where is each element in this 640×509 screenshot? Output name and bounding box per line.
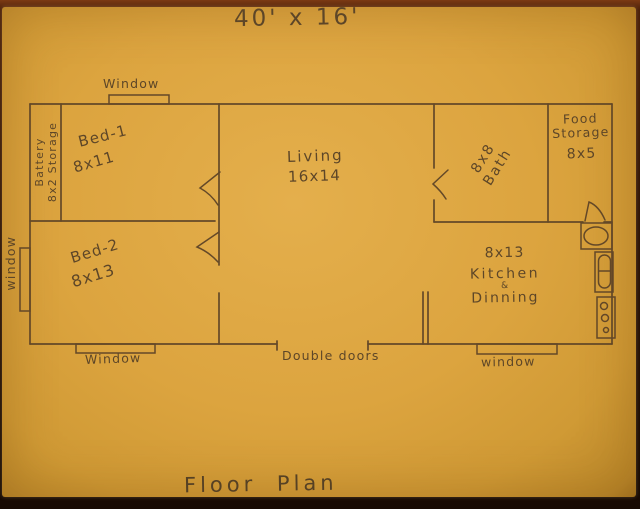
window-bottom-right-symbol (477, 344, 557, 354)
kitchen-dims: 8x13 (461, 244, 547, 263)
window-top-symbol (109, 95, 169, 104)
bath-door-swing (433, 170, 448, 199)
window-left-symbol (20, 248, 30, 311)
floor-plan-caption: Floor Plan (184, 471, 338, 498)
bed1-door-swing (200, 172, 220, 205)
food-storage-dims: 8x5 (550, 145, 613, 163)
bed2-door-swing (197, 232, 219, 262)
overall-dimensions-title: 40' x 16' (234, 4, 361, 33)
double-sink (595, 252, 613, 292)
living-name-label: Living (287, 147, 344, 166)
photo-of-floor-plan: 40' x 16' Window Battery 8x2 Storage Bed… (0, 0, 640, 509)
living-dims-label: 16x14 (288, 167, 342, 186)
window-left-label: window (4, 228, 18, 298)
food-storage-label: Food Storage 8x5 (549, 111, 613, 163)
food-storage-line2: Storage (550, 125, 612, 142)
double-doors-label: Double doors (282, 349, 380, 363)
food-storage-door-swing (585, 202, 605, 221)
battery-storage-line1: Battery (33, 102, 46, 222)
battery-storage-label: Battery 8x2 Storage (33, 102, 59, 222)
kitchen-dining-label: 8x13 Kitchen & Dinning (461, 244, 548, 308)
kitchen-fixtures (581, 223, 615, 338)
window-bottom-right-label: window (481, 355, 536, 370)
window-top-label: Window (103, 77, 160, 91)
window-bottom-left-label: Window (85, 351, 142, 367)
kitchen-line2: Dinning (462, 289, 548, 308)
counter (581, 223, 612, 249)
battery-storage-line2: 8x2 Storage (46, 102, 59, 222)
